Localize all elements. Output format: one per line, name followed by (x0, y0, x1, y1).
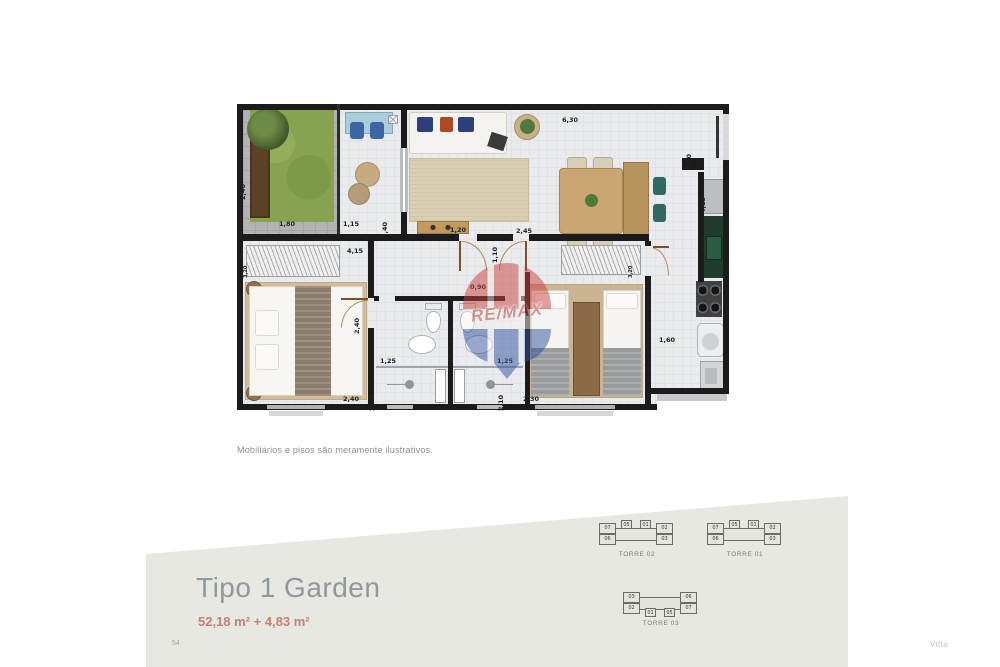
dim-garden-depth: 2,40 (239, 184, 247, 200)
dim-wardrobe2: 3,20 (628, 266, 634, 278)
pillow (255, 310, 279, 336)
dim-bedroom1-width: 4,15 (347, 247, 363, 255)
terrace-chair (370, 122, 384, 139)
bathroom-sink (408, 335, 436, 354)
tower-label: TORRE 03 (622, 620, 700, 627)
tower-map: 03 02 01 05 06 07 (622, 588, 698, 618)
floor-plan: 1,80 2,40 1,15 2,40 2,40 1,20 2,45 6,30 … (237, 100, 729, 418)
window (267, 405, 325, 409)
stool-teal (653, 177, 666, 195)
table-counter (623, 162, 649, 236)
balloon-bottom (463, 329, 551, 363)
bed-blanket (603, 348, 641, 396)
window (400, 148, 408, 212)
dim-terrace-depth: 2,40 (381, 222, 389, 238)
unit-cell: 01 (748, 520, 759, 529)
dim-sideboard: 1,20 (450, 226, 466, 234)
unit-cell: 01 (640, 520, 651, 529)
dim-bedroom1-depth: 2,40 (353, 318, 361, 334)
ac-unit (388, 115, 398, 124)
dim-bedroom1-bottom: 2,40 (343, 395, 359, 403)
outside-area (657, 401, 729, 418)
dim-terrace-width: 1,15 (343, 220, 359, 228)
plant (520, 119, 535, 134)
sofa-cushion-red (440, 117, 453, 132)
stove (696, 281, 722, 317)
kitchen-sink (706, 236, 722, 260)
tower-map: 07 06 05 01 02 03 (598, 519, 674, 549)
pillow (606, 293, 638, 309)
garden-tree (247, 108, 289, 150)
unit-cell: 06 (680, 592, 697, 603)
dim-kitchen-depth: 4,15 (699, 197, 707, 213)
unit-cell: 02 (656, 523, 673, 534)
balloon-tip (494, 363, 520, 379)
unit-cell: 07 (599, 523, 616, 534)
unit-cell: 06 (599, 534, 616, 545)
page-number: 54 (172, 640, 180, 647)
laundry-tank (697, 323, 724, 357)
dim-kitchen-width: 1,60 (659, 336, 675, 344)
pillow (255, 344, 279, 370)
window (535, 405, 615, 409)
shower-arm (387, 384, 407, 385)
plan-disclaimer: Mobiliários e pisos são meramente ilustr… (237, 445, 433, 455)
unit-cell: 03 (656, 534, 673, 545)
remax-watermark: RE/MAX (463, 263, 551, 387)
dim-living-width: 2,45 (516, 227, 532, 235)
dim-bedroom2-width: 2,30 (523, 395, 539, 403)
tower-map: 07 06 05 01 02 03 (706, 519, 782, 549)
outside-paving (657, 394, 727, 401)
stool-teal (653, 204, 666, 222)
dim-top-width: 6,30 (562, 116, 578, 124)
unit-cell: 02 (623, 603, 640, 614)
table-plant (585, 194, 598, 207)
sofa-cushion-blue (417, 117, 433, 132)
wardrobe (246, 245, 340, 277)
toilet (425, 303, 442, 310)
dim-living-depth: 2,40 (401, 224, 409, 240)
unit-cell: 03 (623, 592, 640, 603)
brand-mark: Vitta (930, 640, 948, 649)
unit-cell: 05 (729, 520, 740, 529)
washer (700, 361, 724, 389)
dim-bath1-depth: 2,10 (368, 395, 376, 411)
shower-line (376, 366, 448, 368)
pouf (348, 183, 370, 205)
living-rug (409, 158, 529, 222)
dim-garden-width: 1,80 (279, 220, 295, 228)
dresser (573, 302, 600, 396)
sofa-cushion-blue (458, 117, 474, 132)
brochure-page: 1,80 2,40 1,15 2,40 2,40 1,20 2,45 6,30 … (0, 0, 1000, 667)
unit-cell: 03 (764, 534, 781, 545)
dim-hall-depth: 1,10 (491, 247, 499, 263)
dim-entry-width: 1,10 (685, 154, 693, 170)
unit-cell: 02 (764, 523, 781, 534)
dim-bath2-depth: 2,10 (497, 395, 505, 411)
dim-wardrobe1: 3,20 (243, 266, 249, 278)
entry-gap (723, 114, 729, 160)
bed-blanket (295, 286, 331, 396)
unit-cell: 05 (664, 608, 675, 617)
terrace-chair (350, 122, 364, 139)
unit-cell: 05 (621, 520, 632, 529)
window-sill (537, 411, 613, 416)
unit-cell: 06 (707, 534, 724, 545)
garden-planter (250, 138, 270, 218)
tower-label: TORRE 02 (598, 551, 676, 558)
unit-cell: 07 (680, 603, 697, 614)
vent (387, 405, 413, 409)
tower-keyplan-torre-02: 07 06 05 01 02 03 TORRE 02 (598, 519, 676, 558)
plan-area: 52,18 m² + 4,83 m² (198, 614, 310, 629)
tower-keyplan-torre-03: 03 02 01 05 06 07 TORRE 03 (622, 588, 700, 627)
unit-cell: 01 (645, 608, 656, 617)
dim-bath1-width: 1,25 (380, 357, 396, 365)
plan-type-title: Tipo 1 Garden (196, 572, 380, 604)
unit-cell: 07 (707, 523, 724, 534)
shower-door (435, 369, 446, 403)
tower-label: TORRE 01 (706, 551, 784, 558)
tower-keyplan-torre-01: 07 06 05 01 02 03 TORRE 01 (706, 519, 784, 558)
window-sill (269, 411, 323, 416)
